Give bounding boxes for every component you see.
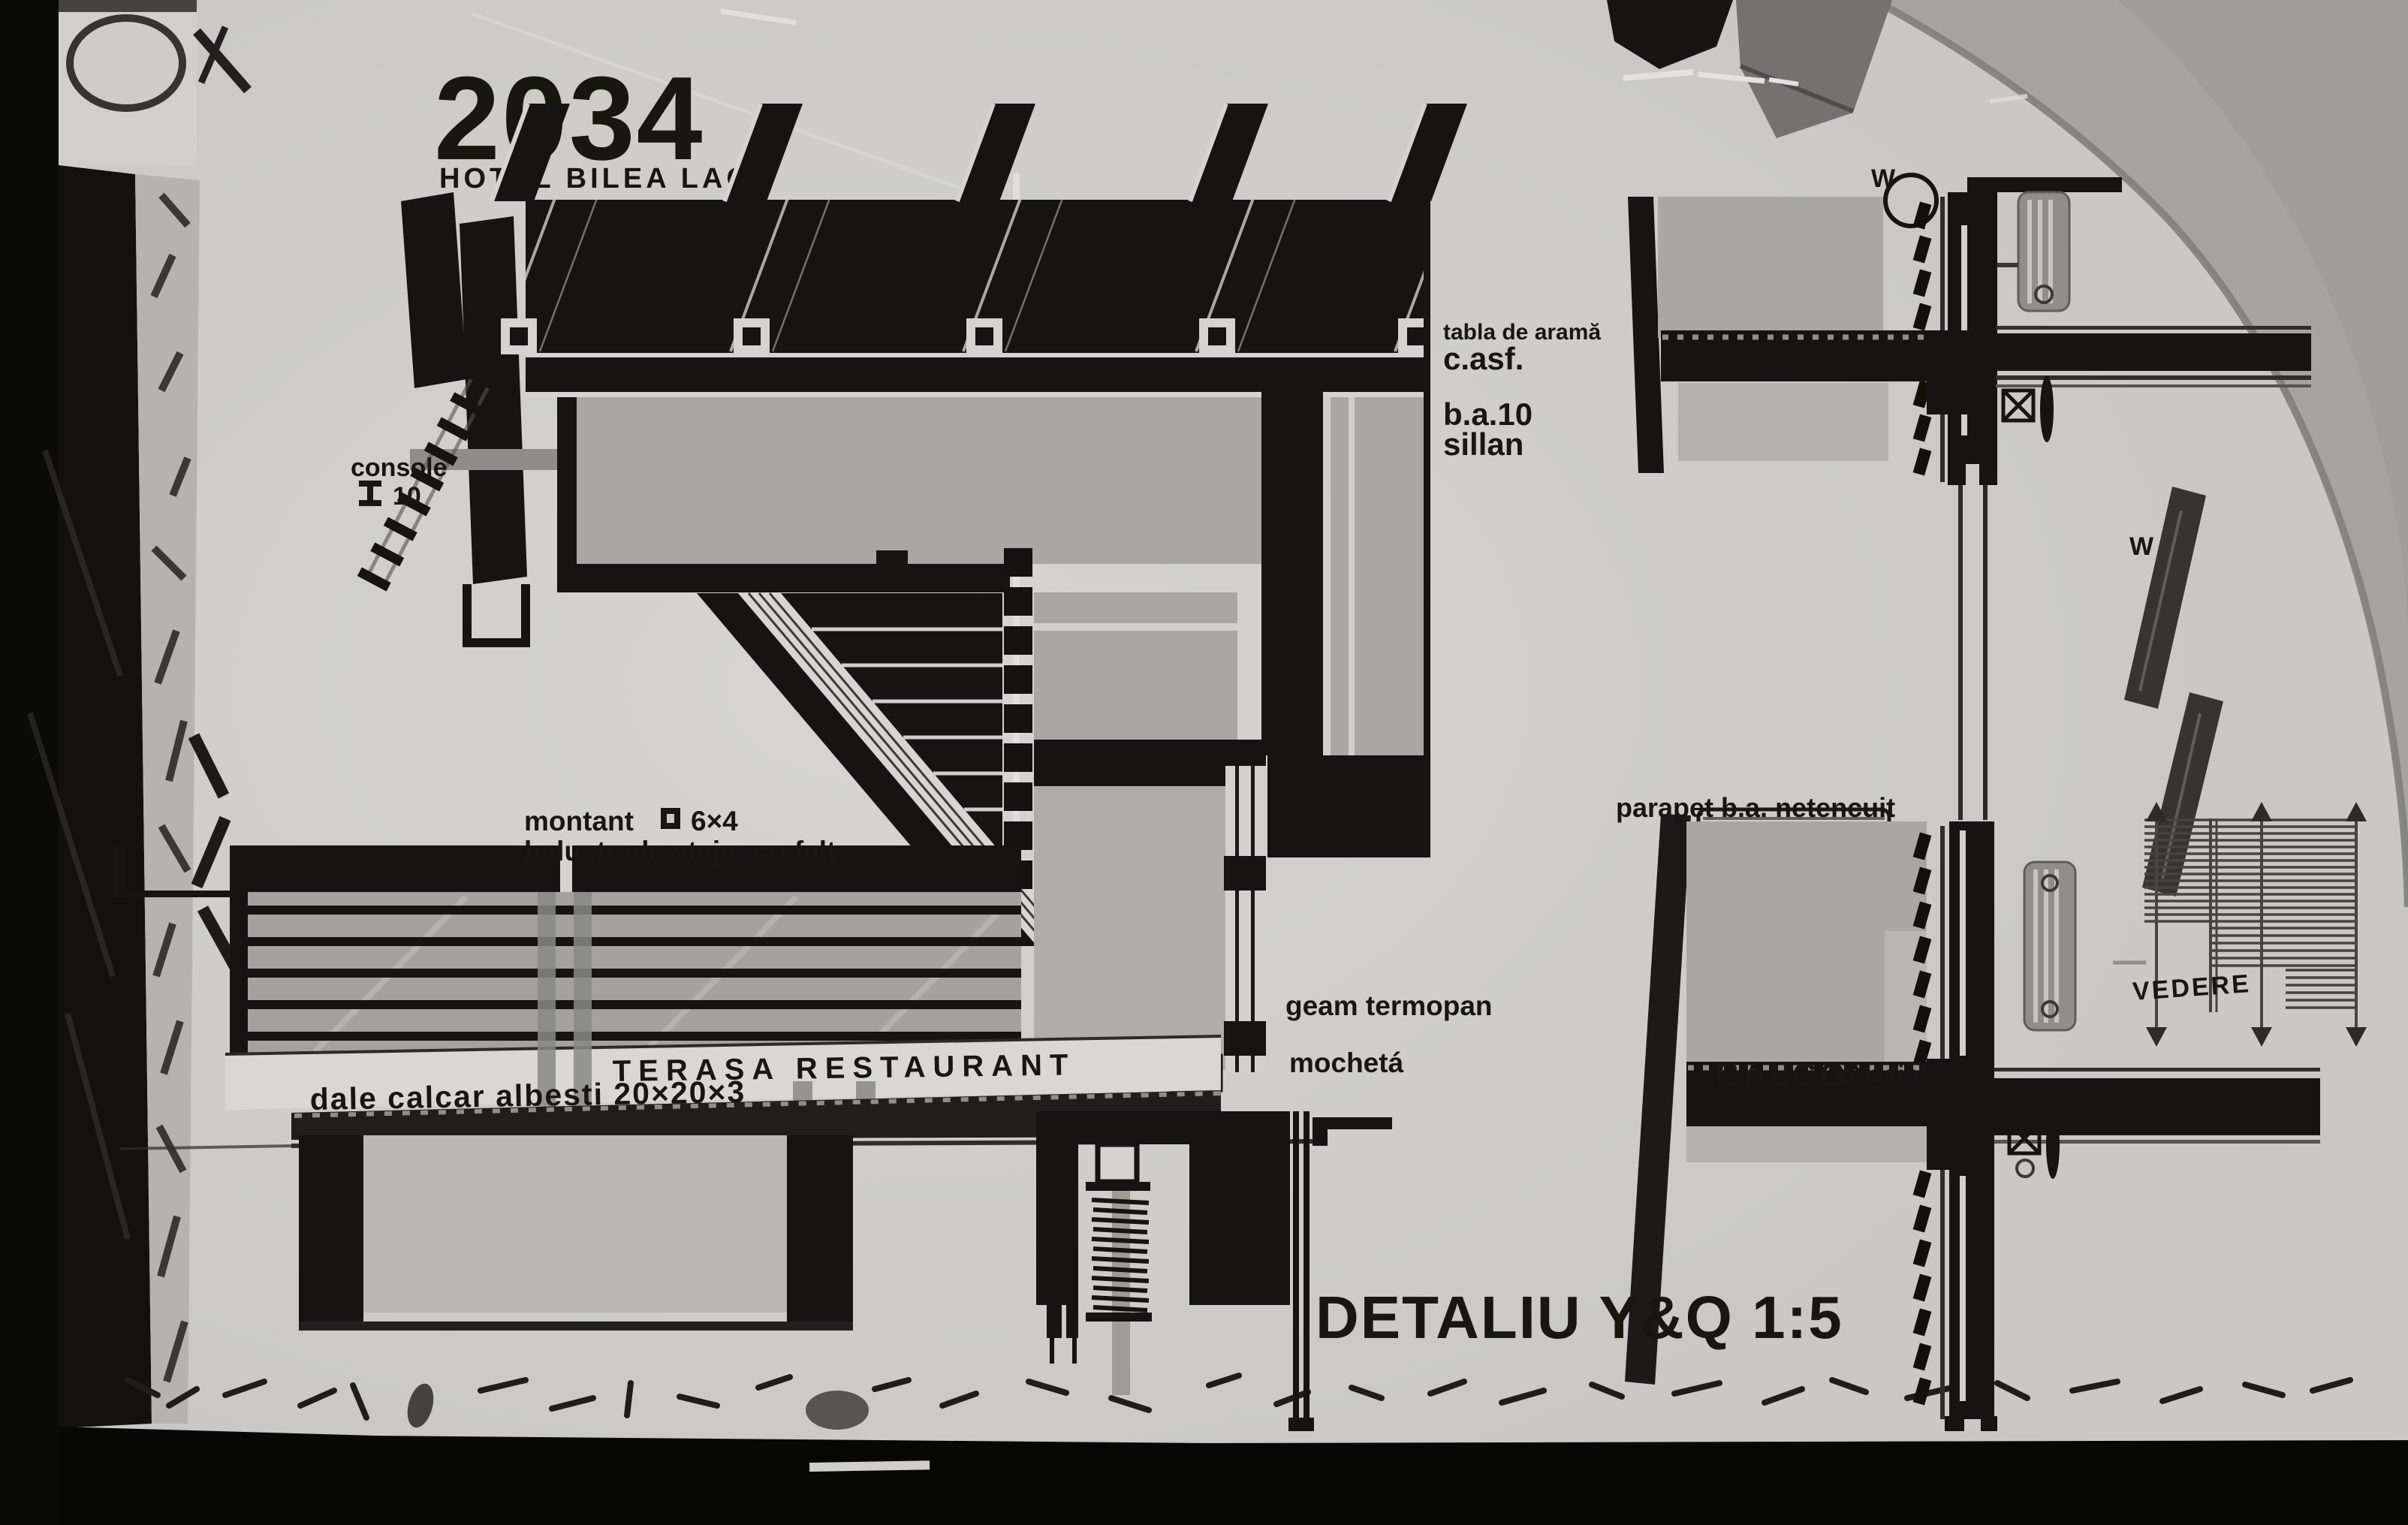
label-w-upper: W xyxy=(1871,164,1896,193)
terrace-column xyxy=(787,1135,853,1325)
radiator-icon xyxy=(2018,192,2069,311)
square-profile-icon xyxy=(661,808,680,829)
label-montant: montant xyxy=(524,806,634,836)
tape-ring-mark xyxy=(70,18,182,108)
label-console-value: 10 xyxy=(393,482,421,511)
drawing-title: HOTEL BILEA LAC xyxy=(439,163,751,194)
label-console: console xyxy=(351,454,447,482)
label-mocheta: mochetá xyxy=(1289,1047,1404,1078)
slab-right-arm xyxy=(1996,333,2311,371)
floor-slab-right-arm xyxy=(1994,1078,2320,1135)
label-detaliu: DETALIU Y&Q 1:5 xyxy=(1316,1284,1843,1351)
section-right-edge xyxy=(1424,201,1430,755)
label-montant-size: 6×4 xyxy=(691,806,738,836)
title-block: 2034 HOTEL BILEA LAC xyxy=(434,53,751,194)
label-mozaic: mozaic xyxy=(1834,1062,1920,1086)
bolt-clamp xyxy=(1098,1144,1137,1182)
column-section xyxy=(1948,192,1997,464)
label-casf: c.asf. xyxy=(1443,341,1523,376)
label-sillan: sillan xyxy=(1443,426,1523,462)
mullion-dash-column xyxy=(1004,548,1032,889)
label-w-mid: W xyxy=(2129,532,2154,561)
radiator-icon-lower xyxy=(2024,862,2075,1030)
label-geam: geam termopan xyxy=(1285,990,1493,1021)
wall-bottom-edge xyxy=(557,564,1010,592)
label-parapet: parapet b.a. netencuit xyxy=(1616,792,1895,823)
label-balustrada: balustrada stejar cu falț xyxy=(524,836,836,867)
floor-slab-left xyxy=(1034,740,1237,786)
drawing-canvas: 2034 HOTEL BILEA LAC xyxy=(0,0,2408,1525)
column-T xyxy=(1261,357,1323,755)
architectural-drawing-photo: 2034 HOTEL BILEA LAC xyxy=(0,0,2408,1525)
terrace-column xyxy=(299,1135,363,1325)
slab-left-arm xyxy=(1661,330,1927,381)
floor-slab-right xyxy=(1267,755,1430,857)
wall-panel xyxy=(557,397,1261,564)
